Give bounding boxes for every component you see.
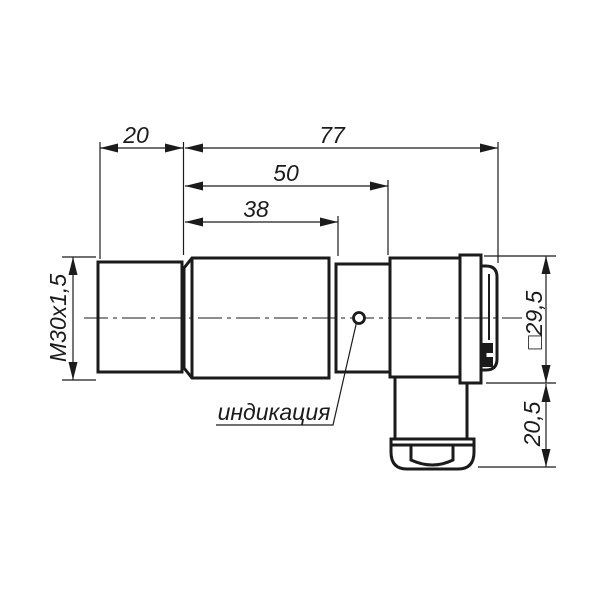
dimension-value: □29,5 — [521, 290, 547, 349]
arrowhead — [320, 218, 338, 227]
arrowhead — [69, 257, 78, 275]
dimension-barrel-length: 38 — [185, 196, 338, 256]
dimension-connector-drop: 20,5 — [478, 384, 556, 467]
dimension-value: 20 — [122, 122, 149, 148]
arrowhead — [185, 182, 203, 191]
thread-section — [98, 262, 182, 372]
dimension-overall-length: 77 — [185, 122, 498, 263]
connector-nut-facets — [411, 445, 453, 465]
arrowhead — [185, 218, 203, 227]
arrowhead — [542, 365, 551, 383]
dimension-value: 77 — [319, 122, 346, 148]
arrowhead — [69, 362, 78, 380]
connector-nut-band — [391, 439, 474, 445]
arrowhead — [370, 182, 388, 191]
connector-tube — [395, 377, 467, 439]
arrowhead — [480, 144, 498, 153]
dimension-value: 38 — [243, 196, 269, 222]
arrowhead — [542, 449, 551, 467]
arrowhead — [185, 144, 203, 153]
indicator-label: индикация — [218, 399, 331, 425]
arrowhead — [542, 256, 551, 274]
sensor-dimension-drawing: индикация 20 77 50 38 — [0, 0, 600, 600]
arrowhead — [100, 144, 118, 153]
led-indicator-dot — [354, 313, 365, 324]
arrowhead — [165, 144, 183, 153]
dimension-value: 50 — [273, 160, 299, 186]
arrowhead — [542, 384, 551, 402]
dimension-housing-length: 50 — [185, 160, 388, 255]
dimension-value: 20,5 — [519, 401, 545, 447]
dimension-thread-length: 20 — [100, 122, 184, 259]
dimension-value: M30x1,5 — [45, 274, 71, 362]
rear-flange — [460, 255, 481, 383]
drawing-canvas: индикация 20 77 50 38 — [0, 0, 600, 600]
sensor-body — [98, 255, 497, 469]
